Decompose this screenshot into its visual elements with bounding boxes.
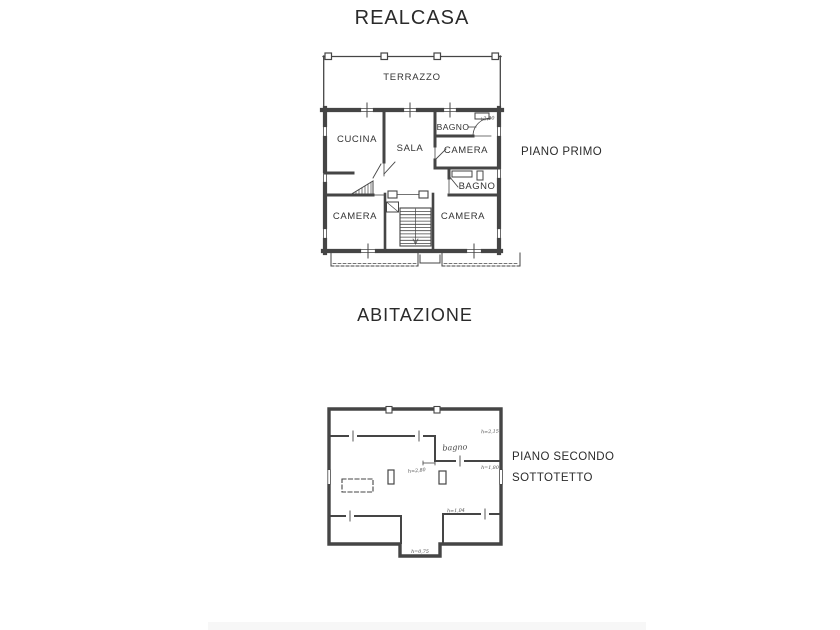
chimney-symbol xyxy=(439,471,446,484)
floor-label-line2: SOTTOTETTO xyxy=(512,468,614,489)
section-title: ABITAZIONE xyxy=(330,305,500,326)
terrace-pillar xyxy=(434,53,441,60)
page-title: REALCASA xyxy=(352,7,472,30)
skylight-symbol xyxy=(342,479,373,492)
height-note-top-right: h=2,15 xyxy=(481,429,499,436)
room-label-terrazzo: TERRAZZO xyxy=(383,72,441,83)
scanned-floorplan-page: REALCASA xyxy=(0,0,840,630)
handwritten-note-240: +2,40 xyxy=(479,115,496,122)
floor-label-piano-secondo: PIANO SECONDO SOTTOTETTO xyxy=(512,447,614,489)
balcony-left xyxy=(331,253,418,266)
height-note-lower-right: h=1,04 xyxy=(447,508,465,515)
height-note-center: h=2,80 xyxy=(408,467,426,475)
attic-outer-wall xyxy=(329,409,501,556)
room-label-bagno-top: BAGNO xyxy=(437,122,470,132)
terrace-pillar xyxy=(381,53,388,60)
terrace-pillar xyxy=(325,53,332,60)
floor-plan-piano-secondo: bagno h=2,15 h=1,80 h=2,80 h=1,04 h=0,75 xyxy=(322,404,512,562)
room-label-sala: SALA xyxy=(397,143,424,154)
balcony-right xyxy=(442,253,520,266)
floor-label-piano-primo: PIANO PRIMO xyxy=(521,146,602,158)
room-label-bagno-attic: bagno xyxy=(442,442,468,452)
room-label-camera-bottom-left: CAMERA xyxy=(333,211,377,222)
height-note-mid-right: h=1,80 xyxy=(481,465,499,471)
room-label-camera-bottom-right: CAMERA xyxy=(441,211,485,222)
floor-plan-piano-primo: TERRAZZO CUCINA SALA BAGNO CAMERA BAGNO … xyxy=(315,50,525,275)
terrace-pillar xyxy=(492,53,499,60)
room-label-cucina: CUCINA xyxy=(337,134,377,145)
chimney-symbol xyxy=(388,470,394,484)
room-label-bagno-mid: BAGNO xyxy=(459,181,496,192)
scan-artifact-strip xyxy=(208,622,646,630)
room-label-camera-top-right: CAMERA xyxy=(444,145,488,156)
floor-label-line1: PIANO SECONDO xyxy=(512,447,614,468)
height-note-bottom: h=0,75 xyxy=(411,549,429,555)
